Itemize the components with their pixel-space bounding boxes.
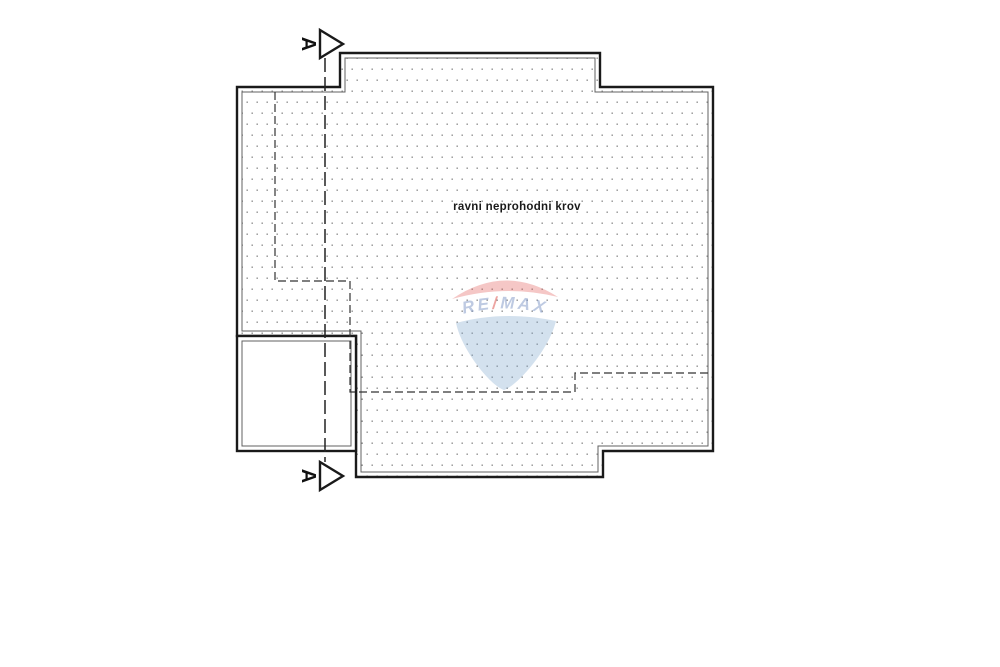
- roof-label: ravni neprohodni krov: [453, 201, 581, 213]
- section-marker-top: A: [297, 30, 343, 58]
- page: RE/MAX A A ravni neprohodni krov: [0, 0, 1000, 667]
- section-letter-bottom: A: [297, 469, 319, 483]
- roof-plan-drawing: RE/MAX A A ravni neprohodni krov: [0, 0, 1000, 667]
- lower-left-room-outline: [237, 336, 356, 451]
- section-arrow-bottom-icon: [320, 462, 343, 490]
- section-letter-top: A: [297, 37, 319, 51]
- section-marker-bottom: A: [297, 462, 343, 490]
